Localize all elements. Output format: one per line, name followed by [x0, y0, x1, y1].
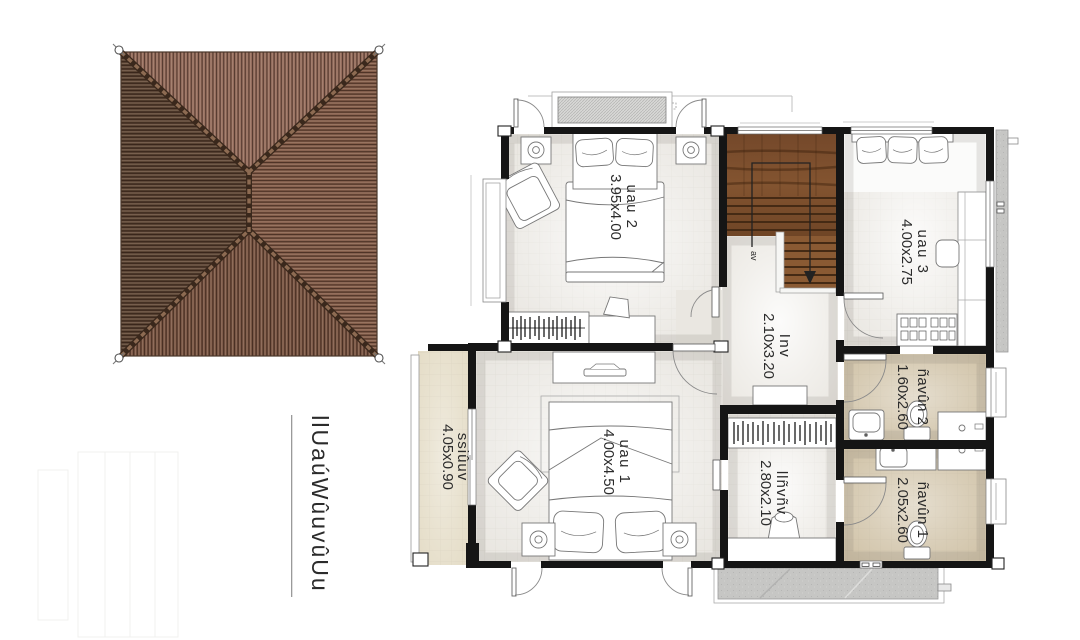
- svg-text:4.05x0.90: 4.05x0.90: [439, 424, 456, 490]
- svg-text:ñavûn 2: ñavûn 2: [914, 369, 931, 426]
- svg-text:uau 2: uau 2: [623, 184, 640, 229]
- svg-text:4.00x2.75: 4.00x2.75: [898, 219, 915, 285]
- svg-text:2.80x2.10: 2.80x2.10: [757, 460, 774, 526]
- svg-text:llUaúWûuvûUu: llUaúWûuvûUu: [307, 415, 333, 592]
- svg-text:1.60x2.60: 1.60x2.60: [894, 364, 911, 430]
- svg-text:llñvñv: llñvñv: [773, 471, 790, 515]
- svg-text:4.00x4.50: 4.00x4.50: [600, 429, 617, 495]
- svg-text:Inv: Inv: [776, 334, 793, 359]
- svg-text:ñavûn 1: ñavûn 1: [914, 482, 931, 539]
- svg-text:uau 3: uau 3: [914, 229, 931, 274]
- svg-text:uau 1: uau 1: [616, 439, 633, 484]
- svg-text:av: av: [749, 251, 759, 261]
- svg-text:2.05x2.60: 2.05x2.60: [894, 477, 911, 543]
- svg-text:2.10x3.20: 2.10x3.20: [760, 313, 777, 379]
- svg-text:3.95x4.00: 3.95x4.00: [607, 174, 624, 240]
